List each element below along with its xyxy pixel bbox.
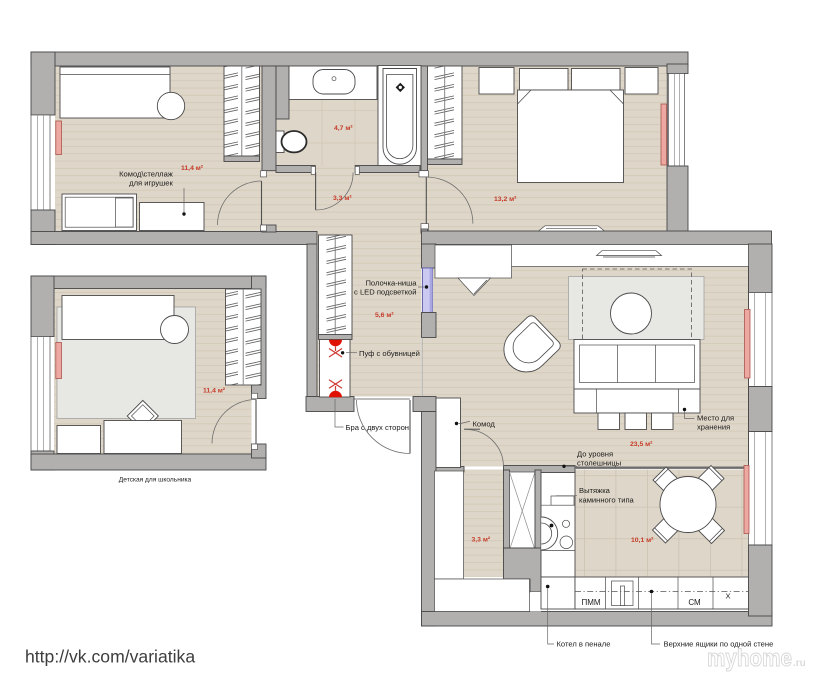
svg-text:.ru: .ru — [793, 658, 806, 669]
svg-text:X: X — [725, 592, 730, 601]
svg-text:Комод: Комод — [473, 420, 496, 429]
svg-text:Пуф с обувницей: Пуф с обувницей — [359, 349, 420, 358]
svg-text:5,6 м²: 5,6 м² — [375, 312, 394, 319]
svg-text:10,1 м²: 10,1 м² — [631, 537, 654, 544]
svg-text:Комод\стеллаж: Комод\стеллаж — [119, 170, 174, 179]
svg-text:хранения: хранения — [697, 423, 730, 432]
svg-text:11,4 м²: 11,4 м² — [203, 388, 226, 395]
svg-text:11,4 м²: 11,4 м² — [181, 165, 204, 172]
svg-text:myhome: myhome — [707, 645, 792, 672]
svg-text:До уровня: До уровня — [577, 450, 613, 459]
svg-text:Место для: Место для — [697, 414, 734, 423]
svg-text:13,2 м²: 13,2 м² — [494, 196, 517, 203]
svg-text:для игрушек: для игрушек — [129, 179, 173, 188]
svg-text:3,3 м²: 3,3 м² — [472, 537, 491, 544]
svg-text:Вытяжка: Вытяжка — [579, 486, 611, 495]
svg-text:каминного типа: каминного типа — [579, 496, 635, 505]
svg-text:4,7 м²: 4,7 м² — [334, 125, 353, 132]
svg-text:3,3 м²: 3,3 м² — [333, 195, 352, 202]
svg-text:Полочка-ниша: Полочка-ниша — [365, 279, 417, 288]
svg-text:с LED подсветкой: с LED подсветкой — [354, 288, 416, 297]
svg-text:http://vk.com/variatika: http://vk.com/variatika — [25, 647, 195, 667]
svg-text:Котел в пенале: Котел в пенале — [557, 640, 611, 649]
svg-text:СМ: СМ — [688, 598, 701, 607]
svg-text:ПММ: ПММ — [581, 598, 600, 607]
svg-text:столешницы: столешницы — [577, 459, 621, 468]
svg-text:Бра с двух сторон: Бра с двух сторон — [346, 423, 410, 432]
svg-text:Детская для школьника: Детская для школьника — [119, 477, 192, 484]
svg-text:23,5 м²: 23,5 м² — [630, 441, 653, 448]
